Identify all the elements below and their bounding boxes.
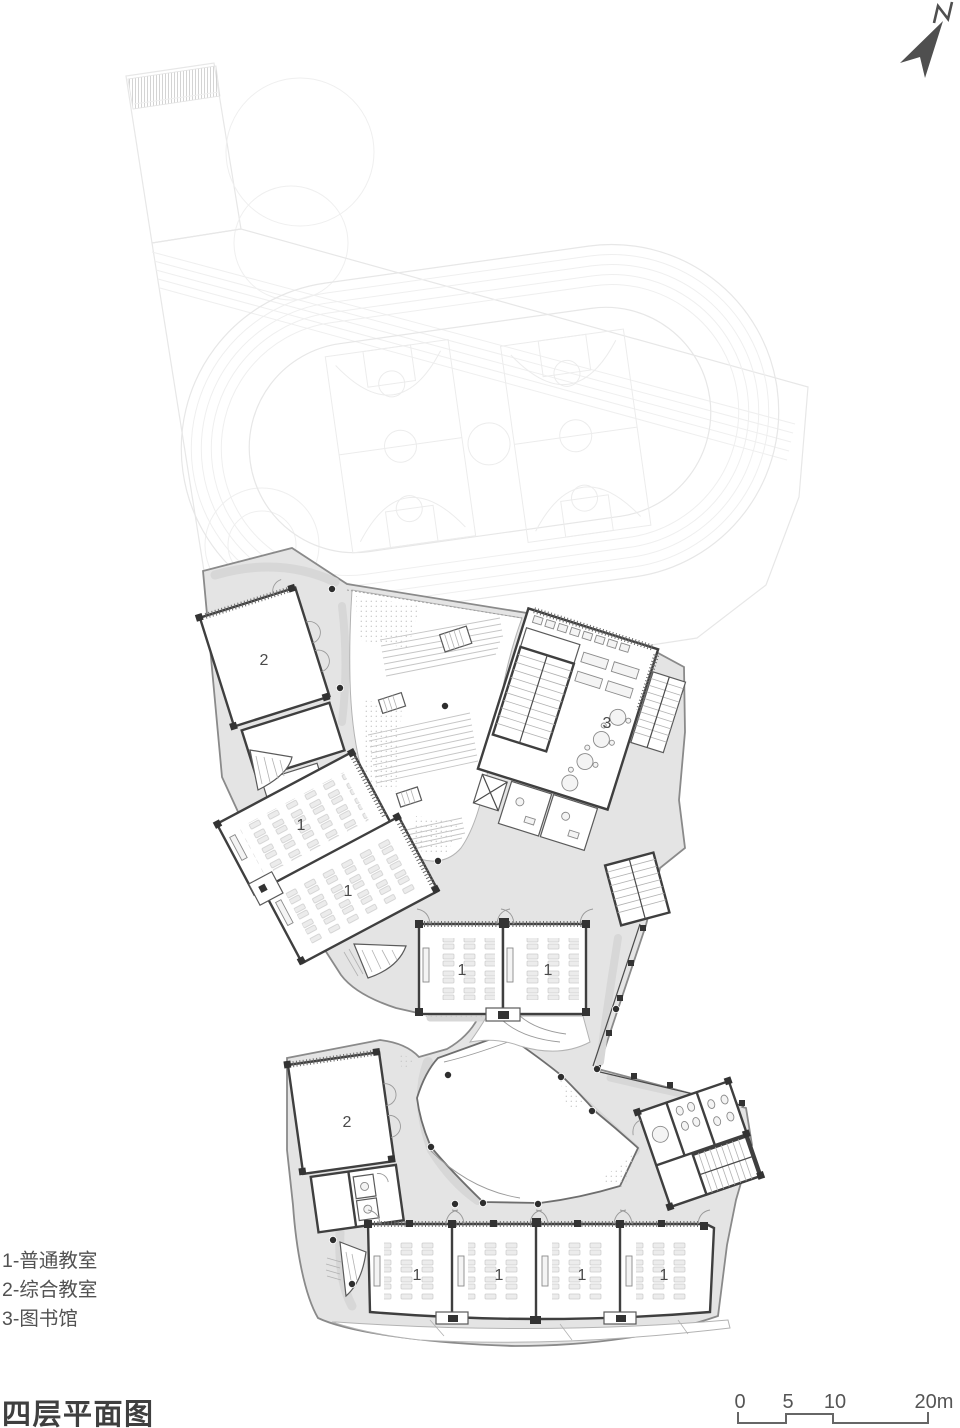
- site-plan: [126, 63, 808, 651]
- scale-label-20m: 20m: [915, 1391, 954, 1413]
- legend-item-1: 1-普通教室: [2, 1250, 97, 1272]
- scale-label-0: 0: [734, 1391, 745, 1413]
- legend-item-2: 2-综合教室: [2, 1279, 97, 1301]
- room-label: 1: [458, 962, 467, 979]
- scale-label-5: 5: [782, 1391, 793, 1413]
- room-label: 1: [413, 1267, 422, 1284]
- room-label: 1: [297, 817, 306, 834]
- room-label: 2: [343, 1114, 352, 1131]
- podium: [423, 948, 429, 982]
- room-label: 2: [260, 652, 269, 669]
- podium: [626, 1256, 632, 1286]
- basketball-court: [325, 340, 475, 553]
- scale-bar: 0 5 10 20m: [734, 1391, 953, 1423]
- room-label: 1: [660, 1267, 669, 1284]
- floor-plan-drawing: 2 1 1 1 1 3 2 1 1 1 1 0 5 10 20m 1-普通教室 …: [0, 0, 960, 1428]
- page-title: 四层平面图: [2, 1399, 155, 1428]
- room-label: 1: [495, 1267, 504, 1284]
- podium: [542, 1256, 548, 1286]
- podium: [458, 1256, 464, 1286]
- legend: 1-普通教室 2-综合教室 3-图书馆: [2, 1250, 97, 1330]
- north-letter-n: [934, 2, 952, 23]
- room-label: 1: [544, 962, 553, 979]
- room-2-lower: [288, 1052, 394, 1174]
- floor-plan-sheet: 2 1 1 1 1 3 2 1 1 1 1 0 5 10 20m 1-普通教室 …: [0, 0, 960, 1428]
- north-arrow: [900, 2, 952, 78]
- basketball-court: [501, 329, 651, 542]
- podium: [374, 1256, 380, 1286]
- site-circle: [226, 78, 374, 226]
- scale-bar-line: [738, 1412, 928, 1423]
- block-c-classrooms: [415, 909, 593, 1021]
- legend-item-3: 3-图书馆: [2, 1308, 78, 1330]
- scale-label-10: 10: [824, 1391, 846, 1413]
- podium: [507, 948, 513, 982]
- room-label: 3: [603, 715, 612, 732]
- field-center-circle: [465, 420, 512, 467]
- room-label: 1: [578, 1267, 587, 1284]
- north-arrow-icon: [900, 21, 943, 78]
- room-label: 1: [344, 883, 353, 900]
